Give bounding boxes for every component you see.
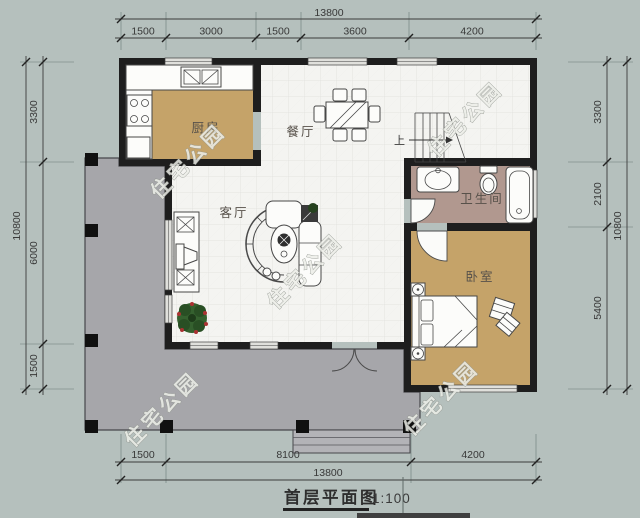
sofa-seat [266, 201, 302, 228]
stool [272, 272, 280, 280]
floor-plan-canvas: 上 [0, 0, 640, 518]
living-label: 客厅 [219, 205, 248, 220]
dim-right-total: 10800 [612, 211, 624, 240]
dim-top-seg: 3600 [343, 26, 367, 38]
dining-label: 餐厅 [286, 124, 315, 139]
bathroom-label: 卫生间 [460, 192, 504, 206]
small-plant [308, 203, 318, 213]
dim-right-seg: 2100 [592, 182, 604, 206]
dining-chair [352, 89, 366, 101]
dim-top-total: 13800 [314, 7, 343, 19]
dim-bottom-seg: 4200 [461, 449, 485, 461]
dim-left-seg: 1500 [28, 354, 40, 378]
title-underline [283, 508, 369, 511]
entry-steps [293, 430, 410, 453]
dining-chair [314, 106, 325, 122]
dim-bottom-seg: 8100 [276, 449, 300, 461]
floor-plant [177, 302, 208, 334]
dim-left-total: 10800 [11, 211, 23, 240]
dining-chair [369, 106, 380, 122]
dim-top-seg: 1500 [131, 26, 155, 38]
bed [412, 296, 477, 347]
dim-left-seg: 6000 [28, 241, 40, 265]
dim-top-seg: 1500 [266, 26, 290, 38]
stair-up-label: 上 [394, 134, 405, 147]
toilet-tank [480, 166, 497, 173]
tv [176, 244, 184, 269]
stove [127, 95, 152, 126]
dim-bottom-total: 13800 [313, 467, 342, 479]
drawing-scale: 1:100 [372, 491, 411, 506]
bottom-bar [357, 513, 470, 518]
bedroom-label: 卧室 [465, 269, 494, 284]
drawing-title: 首层平面图 [284, 487, 379, 507]
dining-chair [333, 129, 347, 141]
dim-top-seg: 3000 [199, 26, 223, 38]
dining-chair [333, 89, 347, 101]
dim-top-seg: 4200 [460, 26, 484, 38]
dim-left-seg: 3300 [28, 100, 40, 124]
stool [263, 268, 271, 276]
dim-right-seg: 5400 [592, 296, 604, 320]
kitchen-cabinet [127, 137, 150, 158]
floor-strip [261, 158, 404, 166]
dim-right-seg: 3300 [592, 100, 604, 124]
dining-chair [352, 129, 366, 141]
